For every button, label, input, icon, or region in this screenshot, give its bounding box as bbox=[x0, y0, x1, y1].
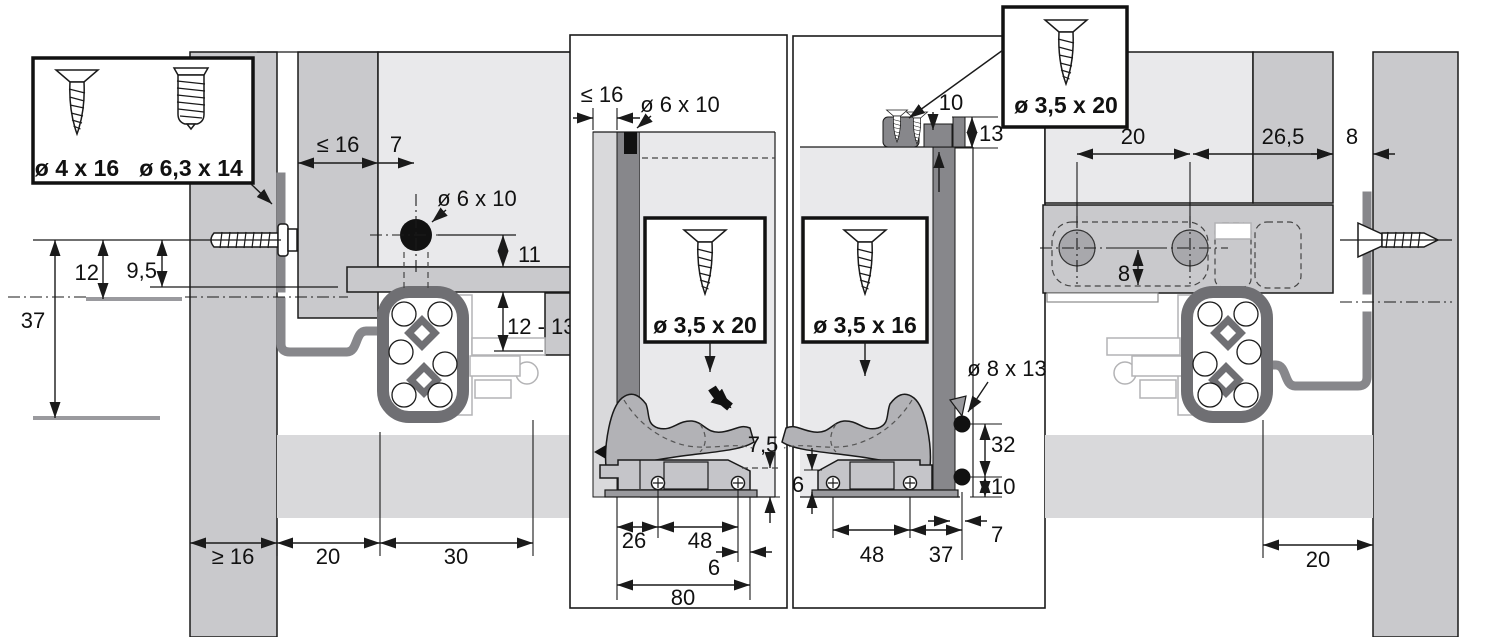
dim-7: 7 bbox=[390, 132, 402, 157]
legend-screw-b-label: ø 6,3 x 14 bbox=[139, 155, 243, 181]
dim-7: 7 bbox=[991, 522, 1003, 547]
dim-20-bottom: 20 bbox=[1306, 547, 1330, 572]
drill-hole bbox=[954, 416, 971, 433]
drawer-runner-installation-diagram: 12 9,5 37 ≤ 16 7 ø 6 x 10 11 12 - 13 ≥ 1… bbox=[0, 0, 1500, 637]
dim-13: 13 bbox=[979, 121, 1003, 146]
drill-hole bbox=[954, 469, 971, 486]
dim-12: 12 bbox=[75, 260, 99, 285]
dim-11: 11 bbox=[518, 242, 541, 267]
dim-9-5: 9,5 bbox=[126, 258, 157, 283]
runner-outline-art bbox=[1107, 295, 1192, 415]
dim-26: 26 bbox=[622, 528, 646, 553]
legend-screw-a-label: ø 4 x 16 bbox=[35, 155, 119, 181]
shelf-bar bbox=[347, 267, 573, 292]
hole-label: ø 8 x 13 bbox=[967, 356, 1046, 381]
dim-32: 32 bbox=[991, 432, 1015, 457]
dim-26-5: 26,5 bbox=[1262, 124, 1305, 149]
screw-spec-label: ø 3,5 x 20 bbox=[1014, 92, 1118, 118]
dim-37: 37 bbox=[929, 542, 953, 567]
dim-le16: ≤ 16 bbox=[581, 82, 624, 107]
dim-6: 6 bbox=[792, 472, 804, 497]
dim-7-5: 7,5 bbox=[748, 432, 779, 457]
latch-housing bbox=[600, 460, 757, 497]
runner-outline-art bbox=[458, 295, 545, 415]
dim-6: 6 bbox=[708, 555, 720, 580]
screw-legend-box: ø 4 x 16 ø 6,3 x 14 bbox=[33, 58, 272, 204]
hole-label: ø 6 x 10 bbox=[640, 92, 719, 117]
bottom-band bbox=[1045, 435, 1373, 518]
screw-spec-label: ø 3,5 x 20 bbox=[653, 312, 757, 338]
bottom-band bbox=[277, 435, 573, 518]
dim-10b: 10 bbox=[991, 474, 1015, 499]
dim-ge16: ≥ 16 bbox=[212, 544, 255, 569]
dim-8-inner: 8 bbox=[1118, 261, 1130, 286]
dim-48: 48 bbox=[688, 528, 712, 553]
euro-screw-icon bbox=[174, 68, 208, 129]
hole-label: ø 6 x 10 bbox=[437, 186, 516, 211]
drawer-bottom-strip bbox=[1047, 293, 1158, 302]
rail-profile bbox=[383, 292, 463, 417]
dim-48: 48 bbox=[860, 542, 884, 567]
dim-20: 20 bbox=[316, 544, 340, 569]
runner-rear-profile bbox=[933, 147, 955, 497]
dim-back-le16: ≤ 16 bbox=[317, 132, 360, 157]
rail-profile bbox=[1187, 292, 1267, 417]
front-fixing-section: ≤ 16 ø 6 x 10 ø 3,5 x 20 7,5 26 48 bbox=[570, 35, 787, 610]
dim-80: 80 bbox=[671, 585, 695, 610]
dowel-plug bbox=[624, 132, 637, 154]
diagram-canvas: 12 9,5 37 ≤ 16 7 ø 6 x 10 11 12 - 13 ≥ 1… bbox=[0, 0, 1500, 637]
dim-8: 8 bbox=[1346, 124, 1358, 149]
screw-spec-label: ø 3,5 x 16 bbox=[813, 312, 917, 338]
dim-30: 30 bbox=[444, 544, 468, 569]
cabinet-side-panel bbox=[1373, 52, 1458, 637]
dim-37: 37 bbox=[21, 308, 45, 333]
dim-12-13: 12 - 13 bbox=[507, 314, 576, 339]
side-mounting-view-right: 20 26,5 8 8 20 bbox=[1040, 52, 1458, 637]
